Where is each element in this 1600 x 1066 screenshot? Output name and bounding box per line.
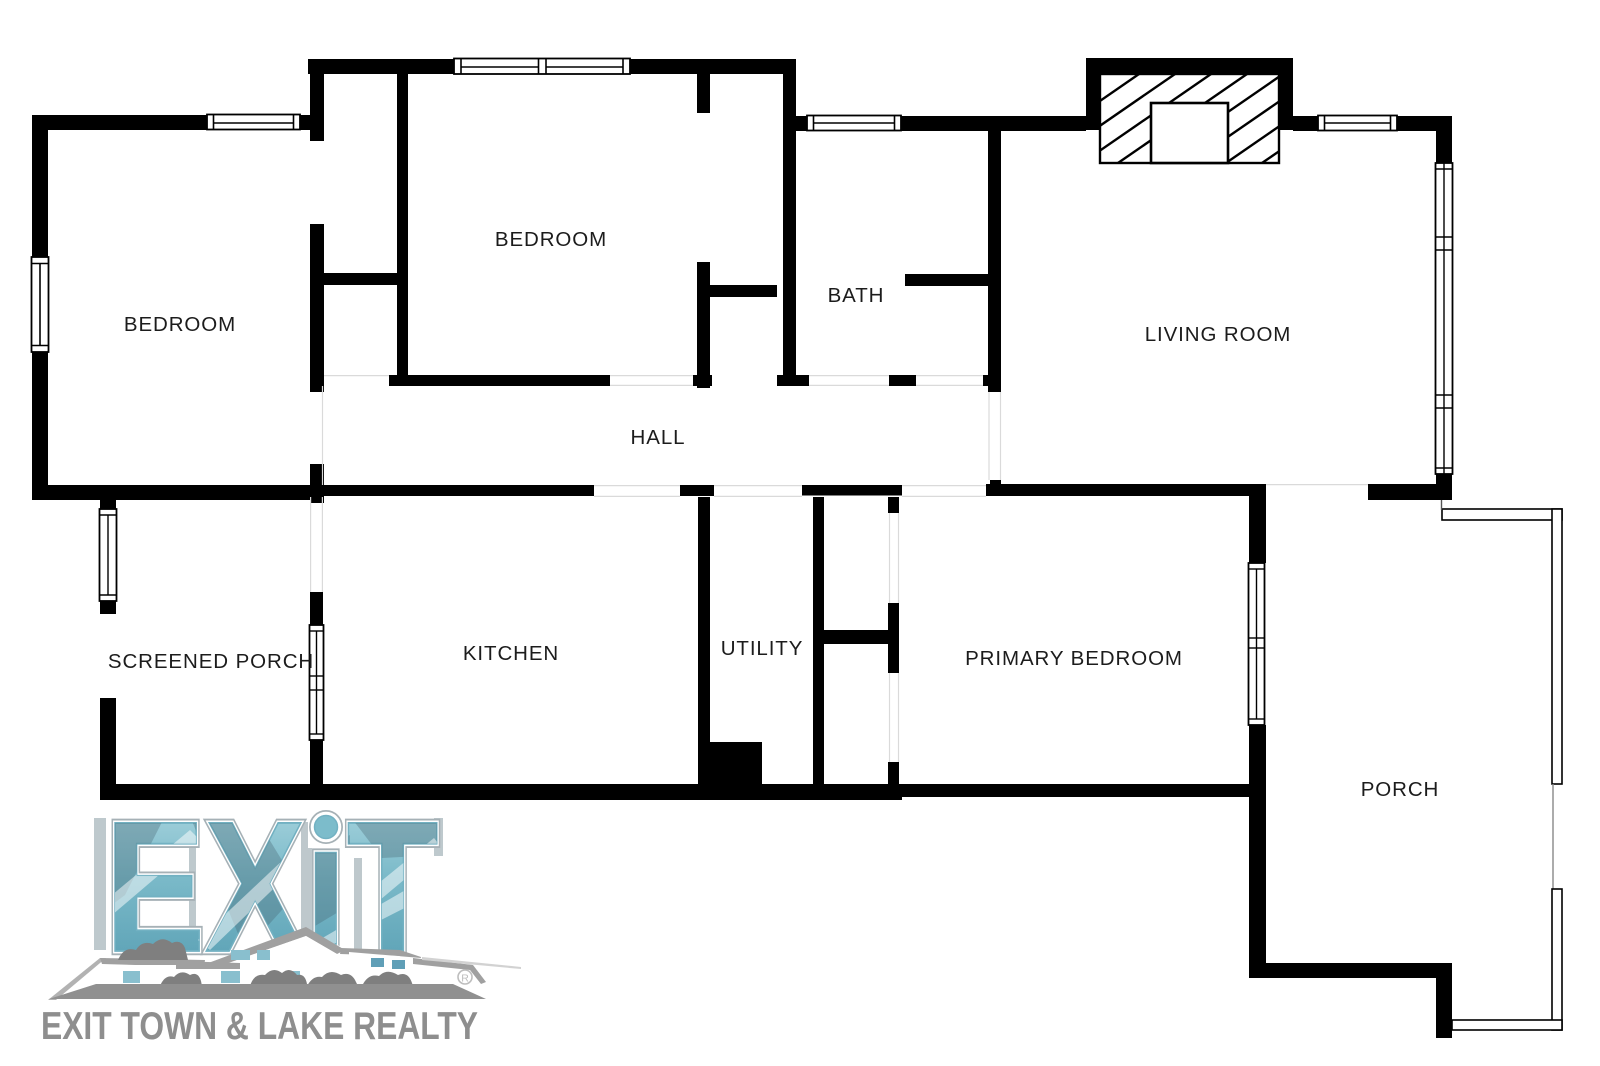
svg-text:EXIT TOWN & LAKE REALTY: EXIT TOWN & LAKE REALTY [41, 1005, 478, 1048]
svg-text:HALL: HALL [631, 426, 686, 449]
svg-text:BEDROOM: BEDROOM [495, 228, 607, 251]
svg-text:UTILITY: UTILITY [721, 637, 804, 660]
svg-text:LIVING ROOM: LIVING ROOM [1145, 323, 1292, 346]
svg-text:BEDROOM: BEDROOM [124, 313, 236, 336]
svg-text:KITCHEN: KITCHEN [463, 642, 559, 665]
svg-text:PORCH: PORCH [1361, 778, 1440, 801]
svg-text:R: R [461, 973, 469, 985]
svg-text:BATH: BATH [828, 284, 885, 307]
svg-text:SCREENED PORCH: SCREENED PORCH [108, 650, 314, 673]
svg-text:PRIMARY BEDROOM: PRIMARY BEDROOM [965, 647, 1183, 670]
